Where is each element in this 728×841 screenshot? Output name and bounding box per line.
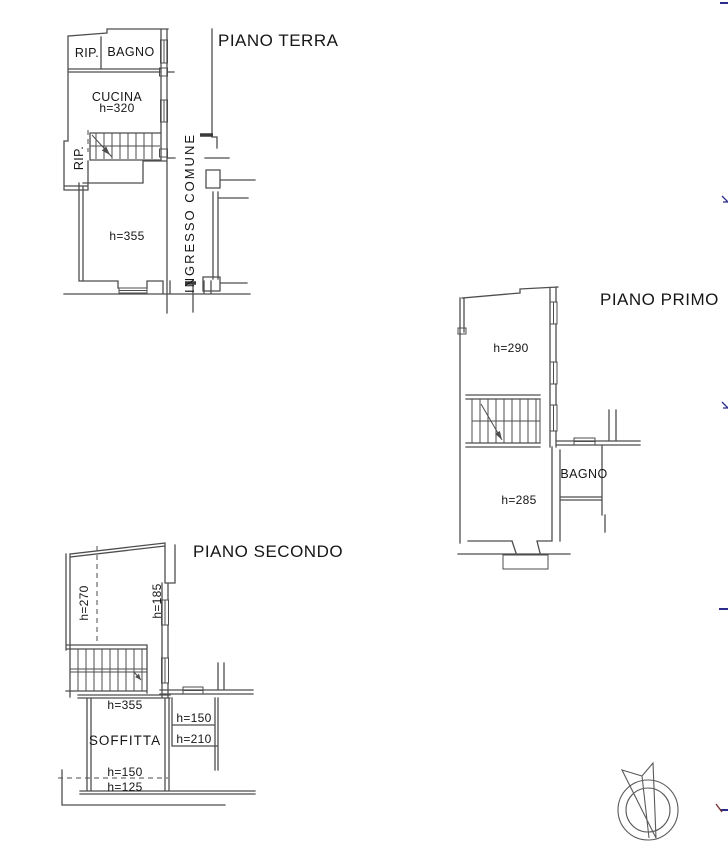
floor-plan-drawing: PIANO TERRA RIP. BAGNO CUCINA h=320 RIP.… bbox=[0, 0, 728, 841]
piano-secondo-title: PIANO SECONDO bbox=[193, 542, 343, 561]
bagno-label: BAGNO bbox=[560, 467, 607, 481]
edge-mark bbox=[722, 196, 728, 202]
piano-primo-plan: PIANO PRIMO h=290 h=285 BAGNO bbox=[458, 287, 719, 569]
stair-room-height-label: h=355 bbox=[107, 698, 142, 712]
compass-needle bbox=[622, 763, 656, 838]
piano-terra-stairs bbox=[90, 133, 160, 159]
edge-mark bbox=[722, 402, 728, 408]
entry-step bbox=[503, 555, 548, 569]
rip-top-label: RIP. bbox=[75, 46, 99, 60]
bagno-label: BAGNO bbox=[107, 45, 154, 59]
upper-room-height-label: h=290 bbox=[493, 341, 528, 355]
soffitta-height-1-label: h=150 bbox=[107, 765, 142, 779]
piano-secondo-plan: PIANO SECONDO h=270 h=185 h=355 SOFFITTA… bbox=[58, 542, 343, 805]
left-area-height-label: h=270 bbox=[77, 585, 91, 620]
soffitta-label: SOFFITTA bbox=[89, 733, 161, 748]
right-area-height-label: h=185 bbox=[150, 583, 164, 618]
piano-primo-stairs bbox=[472, 399, 540, 443]
piano-primo-title: PIANO PRIMO bbox=[600, 290, 719, 309]
closet-height-1-label: h=150 bbox=[176, 711, 211, 725]
lower-room-height-label: h=285 bbox=[501, 493, 536, 507]
piano-terra-title: PIANO TERRA bbox=[218, 31, 339, 50]
floor-plan-sheet: PIANO TERRA RIP. BAGNO CUCINA h=320 RIP.… bbox=[0, 0, 728, 841]
main-room-height-label: h=355 bbox=[109, 229, 144, 243]
cucina-height-label: h=320 bbox=[99, 101, 134, 115]
piano-secondo-stairs bbox=[70, 649, 147, 691]
ingresso-comune-label: INGRESSO COMUNE bbox=[182, 133, 197, 293]
piano-terra-plan: PIANO TERRA RIP. BAGNO CUCINA h=320 RIP.… bbox=[64, 29, 339, 313]
stair-treads bbox=[90, 133, 160, 159]
soffitta-height-2-label: h=125 bbox=[107, 780, 142, 794]
piano-secondo-walls bbox=[62, 543, 255, 805]
rip-side-label: RIP. bbox=[72, 146, 86, 170]
closet-height-2-label: h=210 bbox=[176, 732, 211, 746]
stair-treads bbox=[70, 649, 147, 691]
wall-junction bbox=[458, 328, 466, 334]
edge-mark bbox=[716, 804, 722, 812]
north-arrow-icon bbox=[618, 763, 678, 840]
stair-treads bbox=[472, 399, 540, 443]
sheet-edge-marks bbox=[716, 3, 728, 812]
